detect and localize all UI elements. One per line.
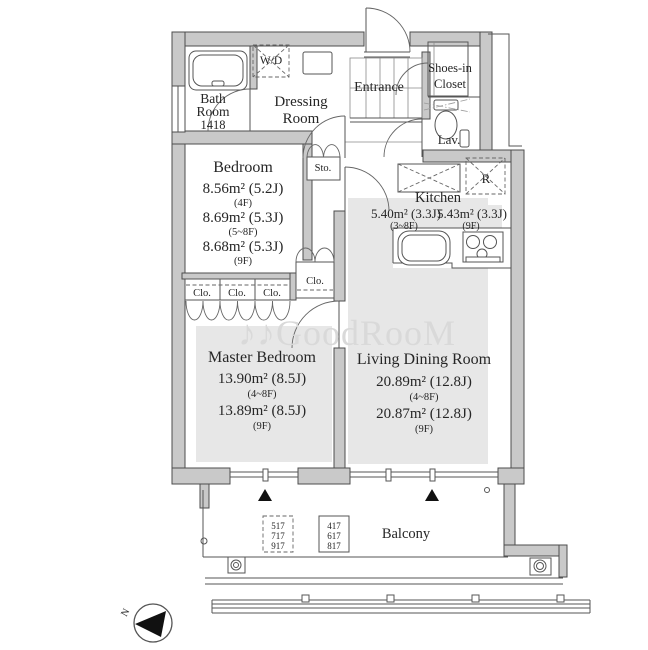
closet-label-2: Clo. [228, 288, 246, 299]
kitchen-name: Kitchen [415, 190, 462, 206]
storage-label: Sto. [315, 163, 332, 174]
dressing-label-2: Room [283, 111, 320, 127]
railing-post-2 [387, 595, 394, 602]
balcony-name: Balcony [382, 526, 431, 542]
railing-post-1 [302, 595, 309, 602]
master-area2: 13.89m² (8.5J) [218, 403, 306, 419]
wall-entrance-right [480, 32, 492, 162]
wall-balcony-bottom-right [504, 545, 566, 556]
master-floor1: (4~8F) [247, 389, 277, 400]
bath-label-2: Room [196, 104, 230, 119]
master-floor2: (9F) [253, 421, 272, 432]
stove-burner-1 [467, 236, 480, 249]
stove-burner-2 [484, 236, 497, 249]
lavatory-label: Lav. [438, 132, 461, 147]
floorplan-svg: ♪♪GoodRooM Bath Room 1418 W/D Dressing R… [0, 0, 648, 650]
bedroom-area3: 8.68m² (5.3J) [203, 239, 284, 255]
kitchen-floor1: (3~8F) [390, 221, 418, 232]
master-name: Master Bedroom [208, 349, 317, 366]
wall-living-left-lower [334, 348, 345, 484]
wall-right [511, 150, 524, 484]
kitchen-area2: 5.43m² (3.3J) [437, 206, 507, 221]
closet-label-1: Clo. [193, 288, 211, 299]
wall-closet-right [290, 273, 296, 300]
unit-solid-3: 817 [327, 541, 341, 551]
living-area1: 20.89m² (12.8J) [376, 374, 472, 390]
stove-grill [466, 257, 500, 262]
wall-kitchen-top [423, 150, 524, 162]
kitchen-floor2: (9F) [462, 221, 479, 232]
master-area1: 13.90m² (8.5J) [218, 371, 306, 387]
closet-label-4: Clo. [306, 276, 324, 287]
refrigerator-label: R [482, 171, 491, 186]
bedroom-area2: 8.69m² (5.3J) [203, 210, 284, 226]
floorplan-page: ♪♪GoodRooM Bath Room 1418 W/D Dressing R… [0, 0, 648, 650]
drain-right [530, 558, 551, 575]
dressing-label-1: Dressing [274, 94, 328, 110]
bedroom-floor2: (5~8F) [228, 227, 258, 238]
wall-living-left-upper [334, 211, 345, 301]
wall-balcony-left-stub [200, 484, 209, 508]
wd-label: W/D [260, 55, 282, 67]
wall-balcony-right [504, 484, 515, 552]
unit-dashed-2: 717 [271, 531, 285, 541]
window-post-3 [430, 469, 435, 481]
bathtub-faucet [212, 81, 224, 86]
living-floor2: (9F) [415, 424, 434, 435]
sink-inner [402, 235, 446, 261]
bedroom-floor1: (4F) [234, 198, 253, 209]
vanity-icon [303, 52, 332, 74]
unit-solid-1: 417 [327, 521, 341, 531]
closet-label-3: Clo. [263, 288, 281, 299]
wall-bottom-left [172, 468, 230, 484]
unit-solid-2: 617 [327, 531, 341, 541]
bedroom-area1: 8.56m² (5.2J) [203, 181, 284, 197]
wall-bottom-mid [298, 468, 350, 484]
living-floor1: (4~8F) [409, 392, 439, 403]
shoes-closet-label-1: Shoes-in [428, 61, 473, 75]
bath-label-3: 1418 [201, 118, 226, 132]
railing-post-3 [472, 595, 479, 602]
bathtub-icon [189, 51, 247, 90]
wall-bath-right [250, 46, 257, 89]
unit-dashed-3: 917 [271, 541, 285, 551]
wall-bottom-right [498, 468, 524, 484]
wall-closet-top [182, 273, 293, 279]
bedroom-floor3: (9F) [234, 256, 253, 267]
living-area2: 20.87m² (12.8J) [376, 406, 472, 422]
window-post-1 [263, 469, 268, 481]
bedroom-name: Bedroom [213, 159, 273, 176]
railing-post-4 [557, 595, 564, 602]
unit-dashed-1: 517 [271, 521, 285, 531]
lav-sink [460, 130, 469, 147]
window-post-2 [386, 469, 391, 481]
wall-balcony-step [559, 545, 567, 577]
watermark-text: ♪♪GoodRooM [238, 313, 456, 353]
shoes-closet-label-2: Closet [434, 77, 466, 91]
kitchen-area1: 5.40m² (3.3J) [371, 206, 441, 221]
entrance-label: Entrance [354, 80, 404, 95]
living-name: Living Dining Room [357, 351, 492, 368]
wall-top-left [172, 32, 364, 46]
drain-left [228, 557, 245, 573]
wall-bath-bedroom [172, 131, 312, 144]
